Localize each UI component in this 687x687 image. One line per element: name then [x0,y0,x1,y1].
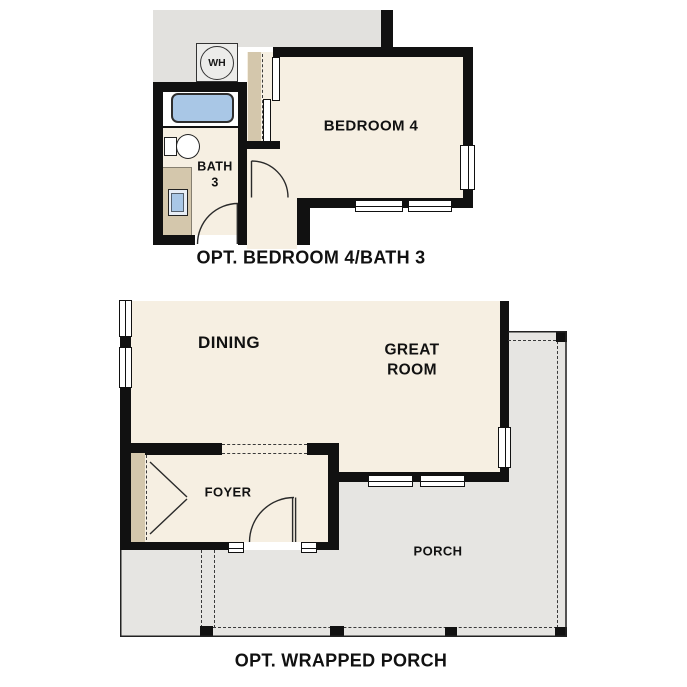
wall [238,82,247,245]
top-plan-caption: OPT. BEDROOM 4/BATH 3 [197,248,426,269]
window [368,475,413,487]
cased-opening-dashed-line [222,453,307,454]
window [460,145,475,190]
closet-shelf [248,52,261,141]
window [119,300,133,337]
porch-dashed-line [214,550,215,628]
wall [500,301,509,427]
wall [247,141,280,149]
porch-post [200,626,213,637]
porch-dashed-line [201,550,202,628]
water-heater-icon: WH [200,46,234,80]
wall [153,82,240,92]
wall [120,300,131,550]
porch-post [555,627,567,637]
closet-bypass-door [263,99,271,142]
bathtub [171,93,234,123]
floorplan-sheet: WH BEDROOM 4 BATH 3 OPT. BEDROOM 4/BATH … [0,0,687,687]
hallway-floor [247,198,297,249]
porch-post [445,627,457,637]
sink [168,189,188,216]
porch-dashed-line [213,627,557,628]
porch-post [330,626,344,637]
sink-basin [171,193,184,212]
window [119,347,133,388]
bath3-label: BATH 3 [197,160,232,191]
great-room-label: GREAT ROOM [384,341,439,380]
porch-deck [120,550,567,637]
porch-deck [339,482,508,550]
wall [273,47,473,57]
window [498,427,511,468]
wall [328,443,339,550]
wall [153,82,163,245]
porch-dashed-line [557,341,558,628]
wall [297,198,310,245]
porch-label: PORCH [414,544,463,559]
closet-bypass-door [272,57,280,101]
porch-dashed-line [508,340,556,341]
wall [153,235,195,245]
cased-opening-dashed-line [222,444,307,445]
window [355,200,403,212]
entry-sidelite [301,542,317,553]
entry-sidelite [228,542,244,553]
dining-label: DINING [198,333,260,353]
bedroom4-label: BEDROOM 4 [324,118,418,135]
great-room-floor [339,301,502,472]
water-heater-label: WH [208,57,226,69]
foyer-closet-shelf [131,453,145,542]
bottom-plan-caption: OPT. WRAPPED PORCH [235,651,447,672]
toilet [176,134,200,159]
window [420,475,465,487]
porch-post [556,331,567,342]
toilet [164,137,178,156]
window [408,200,452,212]
closet-rod-dashed-line [146,455,147,540]
wall [120,542,244,550]
tub-alcove-edge [163,126,238,128]
wall [381,10,393,47]
foyer-label: FOYER [205,485,252,500]
